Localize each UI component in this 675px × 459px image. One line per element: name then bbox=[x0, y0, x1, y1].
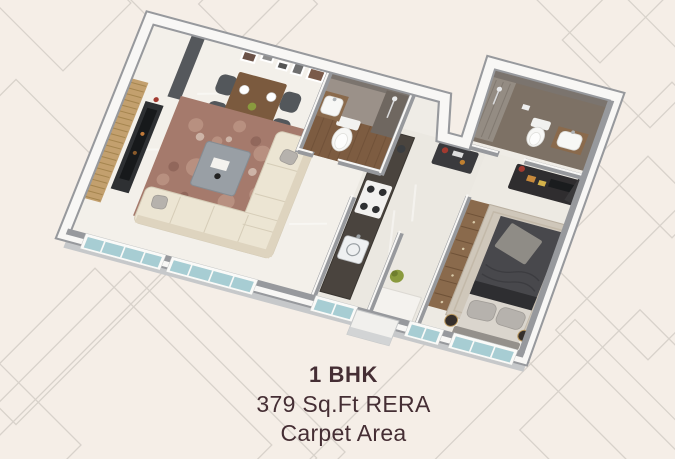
floor-plan-stage: 1 BHK 379 Sq.Ft RERA Carpet Area bbox=[0, 0, 675, 459]
plan-caption: 1 BHK 379 Sq.Ft RERA Carpet Area bbox=[0, 364, 675, 445]
plan-area: 379 Sq.Ft RERA bbox=[12, 393, 675, 416]
plan-title: 1 BHK bbox=[12, 364, 675, 386]
plan-area-label: Carpet Area bbox=[12, 422, 675, 445]
